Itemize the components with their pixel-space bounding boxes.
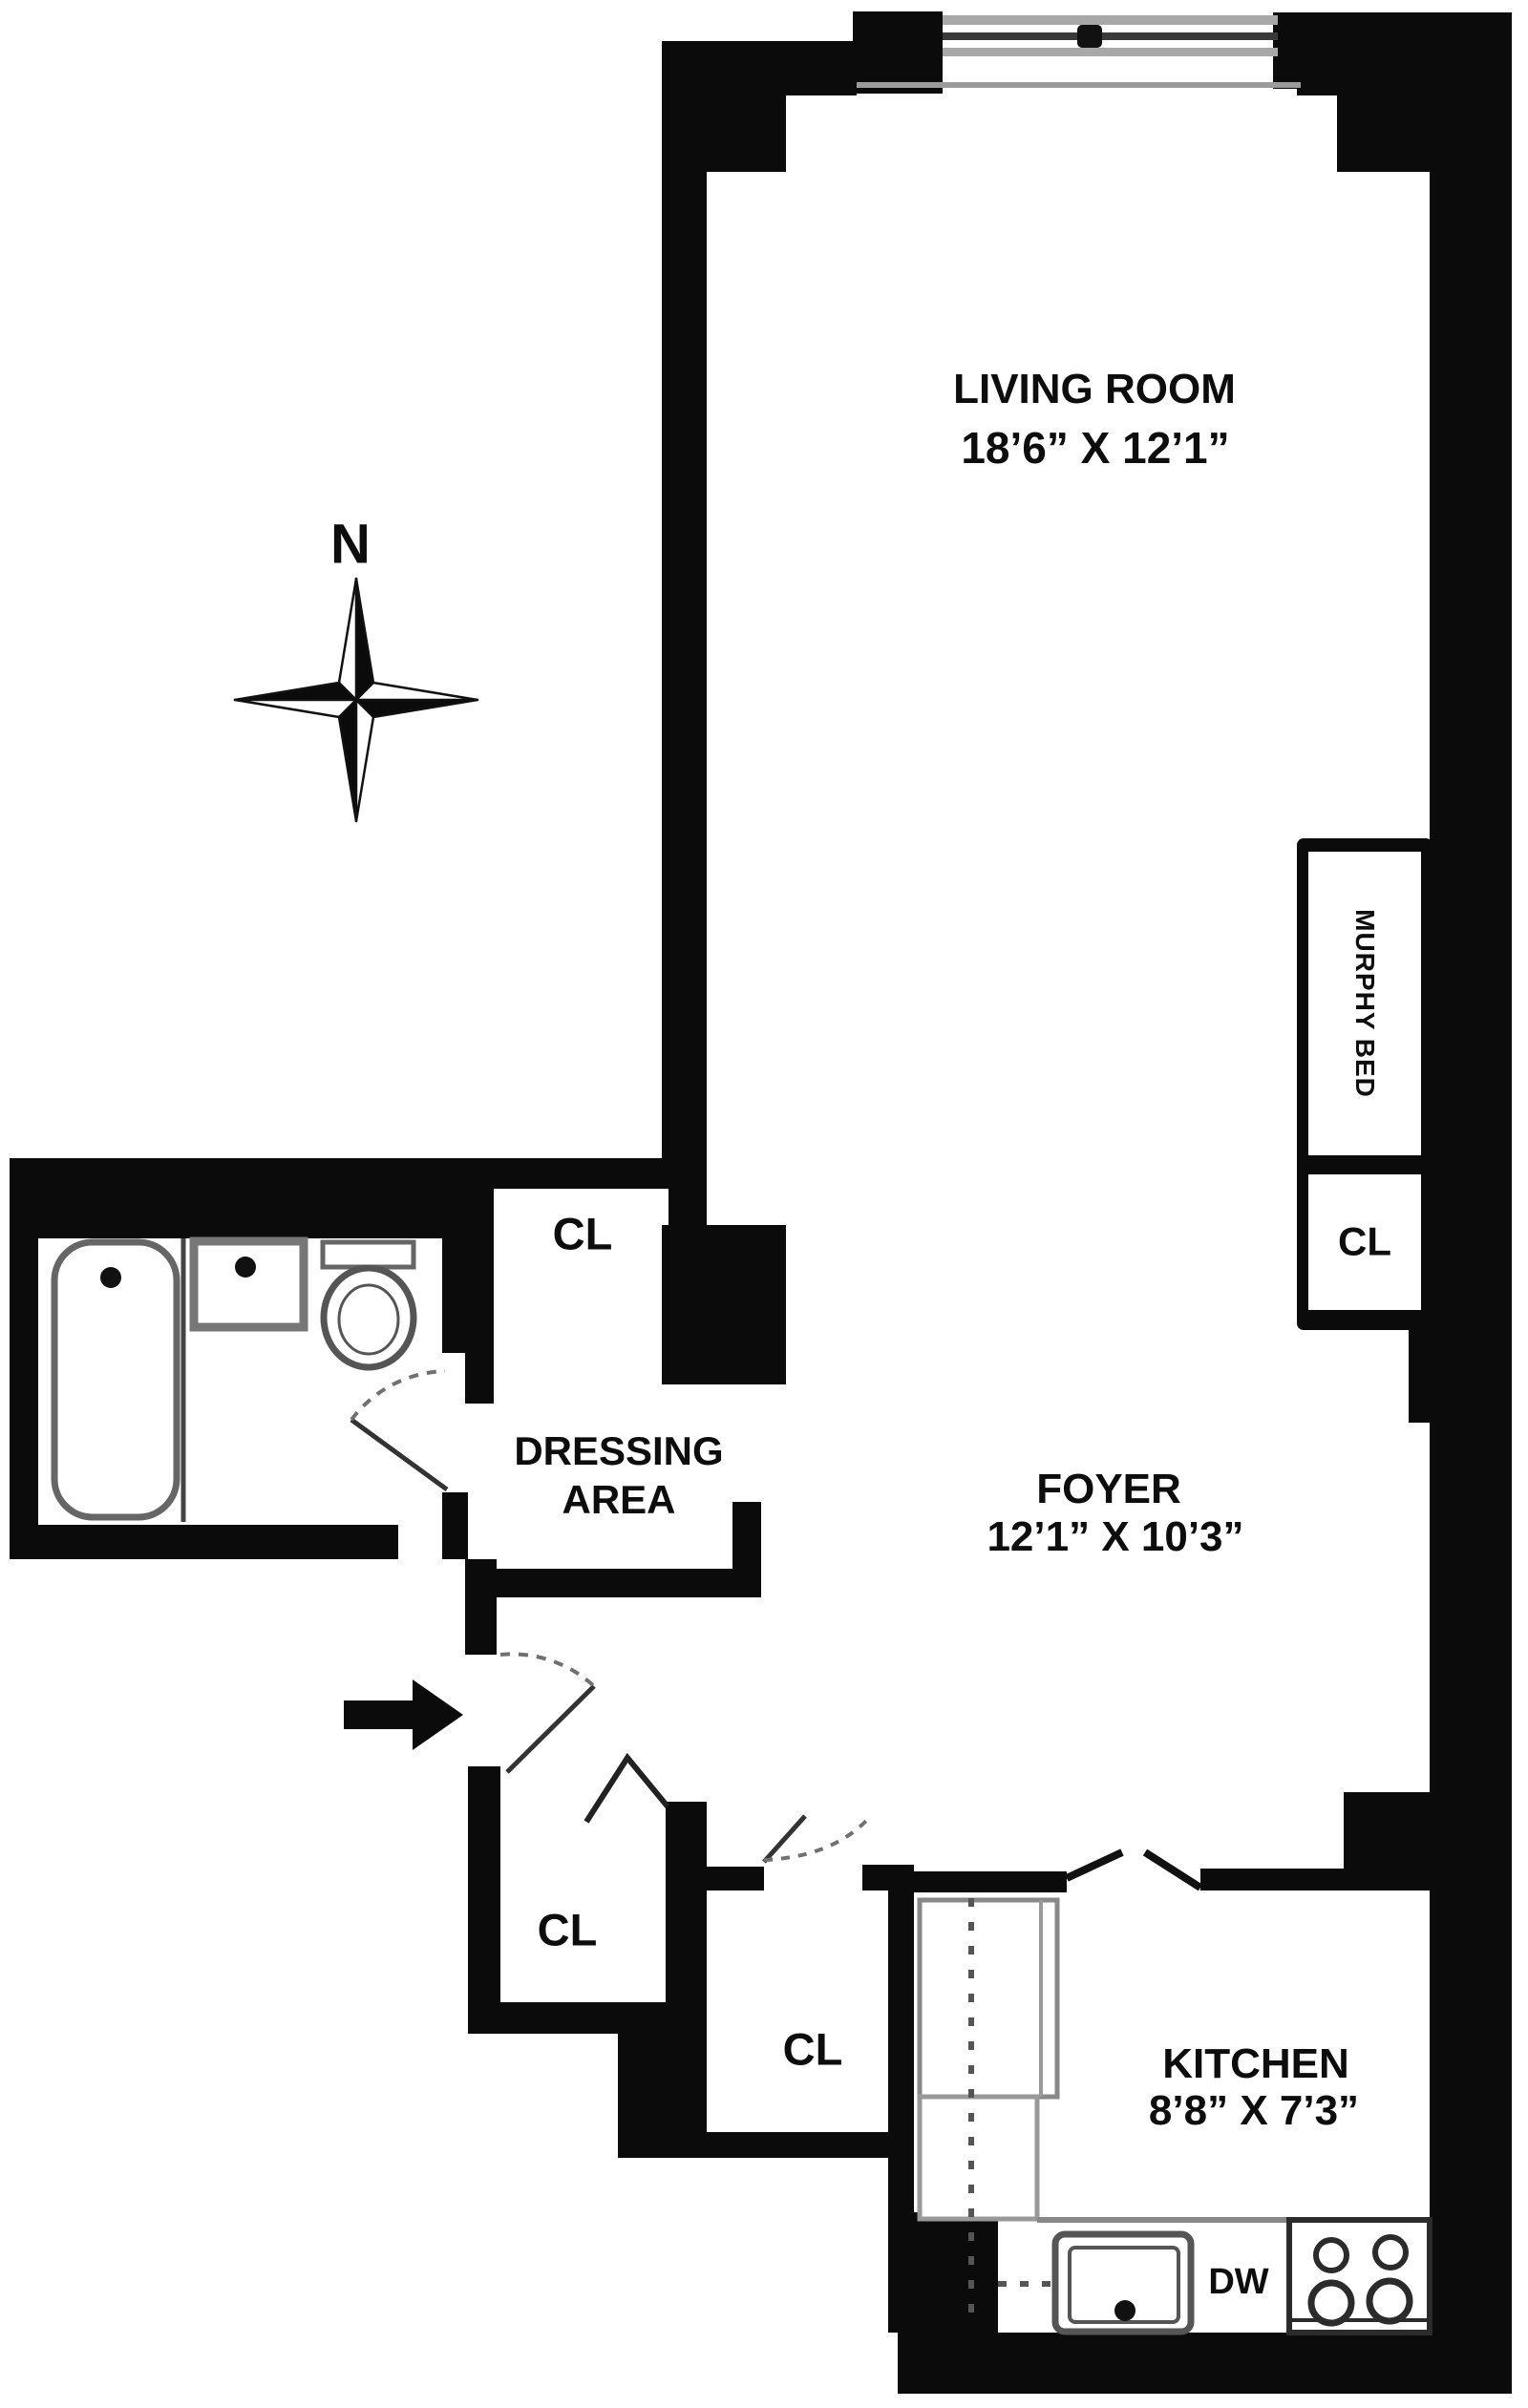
- bathroom-door-leaf: [351, 1420, 447, 1489]
- living-room-label: LIVING ROOM: [953, 364, 1236, 415]
- kitchen-label: KITCHEN: [1162, 2038, 1349, 2090]
- foyer-label: FOYER: [1036, 1464, 1181, 1515]
- stove-burner: [1311, 2283, 1351, 2323]
- sink-faucet-dot: [235, 1257, 256, 1278]
- compass-rose-icon: [235, 579, 477, 821]
- dressing-area-label: DRESSING AREA: [514, 1426, 723, 1524]
- murphy-closet-label: CL: [1338, 1216, 1391, 1265]
- dishwasher-label: DW: [1208, 2260, 1268, 2304]
- murphy-bed-label: MURPHY BED: [1348, 909, 1381, 1098]
- kitchen-dimensions: 8’8” X 7’3”: [1149, 2085, 1359, 2137]
- dressing-closet-label: CL: [553, 1206, 613, 1260]
- floor-plan: N LIVING ROOM 18’6” X 12’1” MURPHY BED C…: [0, 0, 1528, 2408]
- kitchen-door-left-leaf: [1067, 1852, 1122, 1878]
- stove-burner: [1369, 2281, 1410, 2321]
- foyer-closet-door-arc: [764, 1820, 867, 1860]
- stove-burner: [1316, 2240, 1347, 2271]
- entry-closet-door: [586, 1758, 668, 1822]
- living-room-dimensions: 18’6” X 12’1”: [961, 421, 1229, 475]
- entry-arrow-icon: [344, 1679, 463, 1750]
- dressing-area-line2: AREA: [562, 1477, 675, 1522]
- walls: [10, 11, 1512, 2394]
- bathroom-fixtures: [54, 1238, 414, 1522]
- stove: [1289, 2220, 1430, 2333]
- compass-north-label: N: [330, 512, 371, 580]
- bathtub-drain: [100, 1267, 121, 1288]
- toilet-tank: [323, 1242, 414, 1267]
- dressing-area-line1: DRESSING: [514, 1428, 723, 1473]
- foyer-closet-label: CL: [783, 2021, 843, 2076]
- stove-burner: [1375, 2237, 1406, 2268]
- entry-door-leaf: [507, 1686, 594, 1772]
- entry-closet-label: CL: [538, 1902, 598, 1956]
- window-mullion: [1077, 25, 1102, 48]
- bathroom-sink: [194, 1241, 304, 1327]
- kitchen-door-right-leaf: [1145, 1852, 1200, 1888]
- toilet-bowl: [324, 1268, 414, 1367]
- entry-door-arc: [500, 1654, 594, 1686]
- refrigerator: [920, 1900, 1057, 2097]
- foyer-dimensions: 12’1” X 10’3”: [987, 1511, 1243, 1563]
- window-sill-line: [857, 82, 1301, 88]
- counter: [920, 2097, 1037, 2219]
- kitchen-sink-drain: [1114, 2300, 1135, 2321]
- bathroom-door-arc: [351, 1371, 445, 1420]
